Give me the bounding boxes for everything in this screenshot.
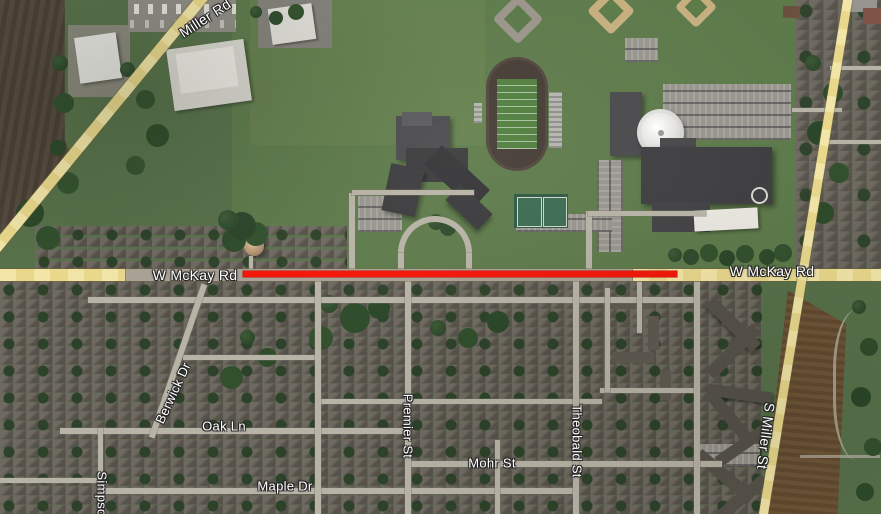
tree-cluster (250, 6, 262, 18)
warehouse-roof-detail (175, 46, 238, 94)
parking-lot (597, 160, 623, 252)
street (318, 399, 602, 404)
street (637, 281, 642, 333)
road-label-w-mckay-rd-left: W McKay Rd (153, 267, 238, 283)
tree-cluster (805, 55, 821, 71)
road-label-oak-ln: Oak Ln (202, 419, 246, 434)
bleachers (549, 92, 562, 148)
street (183, 355, 318, 360)
street-maple-dr (100, 488, 578, 494)
road-w-mckay-rd-west (0, 269, 125, 281)
street-mohr-st (408, 461, 722, 467)
bleachers (474, 103, 482, 123)
driveway (828, 140, 881, 144)
campus-drive (588, 211, 706, 216)
road-label-simpson-st: Simpso (95, 471, 110, 514)
field-path (833, 310, 880, 460)
house (783, 6, 801, 19)
football-field (497, 79, 537, 149)
field-path (800, 455, 880, 458)
road-label-w-mckay-rd-right: W McKay Rd (730, 263, 815, 279)
parking-lot (625, 38, 658, 62)
street-theobald-st (573, 281, 579, 514)
tree-cluster (218, 210, 238, 230)
campus-drive (586, 211, 592, 271)
road-label-mohr-st: Mohr St (468, 456, 516, 471)
apartment-building (612, 352, 654, 363)
building (863, 8, 881, 24)
campus-drive (349, 193, 355, 271)
small-building (268, 3, 317, 45)
street (0, 478, 100, 483)
driveway (792, 108, 842, 112)
road-label-premier-st: Premier St (401, 394, 416, 458)
warehouse-building (74, 32, 122, 83)
water-tower (244, 236, 264, 256)
residential-strip-north (35, 226, 347, 270)
roundabout (751, 187, 768, 204)
water-tower-path (249, 256, 253, 270)
tree-cluster (430, 320, 446, 336)
road-label-maple-dr: Maple Dr (257, 479, 312, 494)
street (600, 388, 700, 393)
street (315, 281, 321, 514)
tree-cluster (52, 55, 68, 71)
route-highlight[interactable] (243, 271, 677, 277)
gym-building (610, 92, 642, 156)
road-label-theobald-st: Theobald St (570, 404, 585, 477)
apartment-building (660, 370, 671, 400)
campus-drive (352, 190, 474, 195)
tennis-court (517, 197, 542, 227)
tennis-court (543, 197, 567, 227)
street (605, 288, 610, 392)
street (495, 440, 500, 514)
school-building (402, 112, 432, 126)
tree-cluster (852, 300, 866, 314)
tree-cluster (668, 248, 682, 262)
satellite-map[interactable]: Miller Rd W McKay Rd W McKay Rd Berwick … (0, 0, 881, 514)
street (694, 281, 700, 514)
apartment-building (648, 316, 659, 350)
dome-vent (658, 130, 664, 136)
tree-cluster (240, 330, 255, 345)
